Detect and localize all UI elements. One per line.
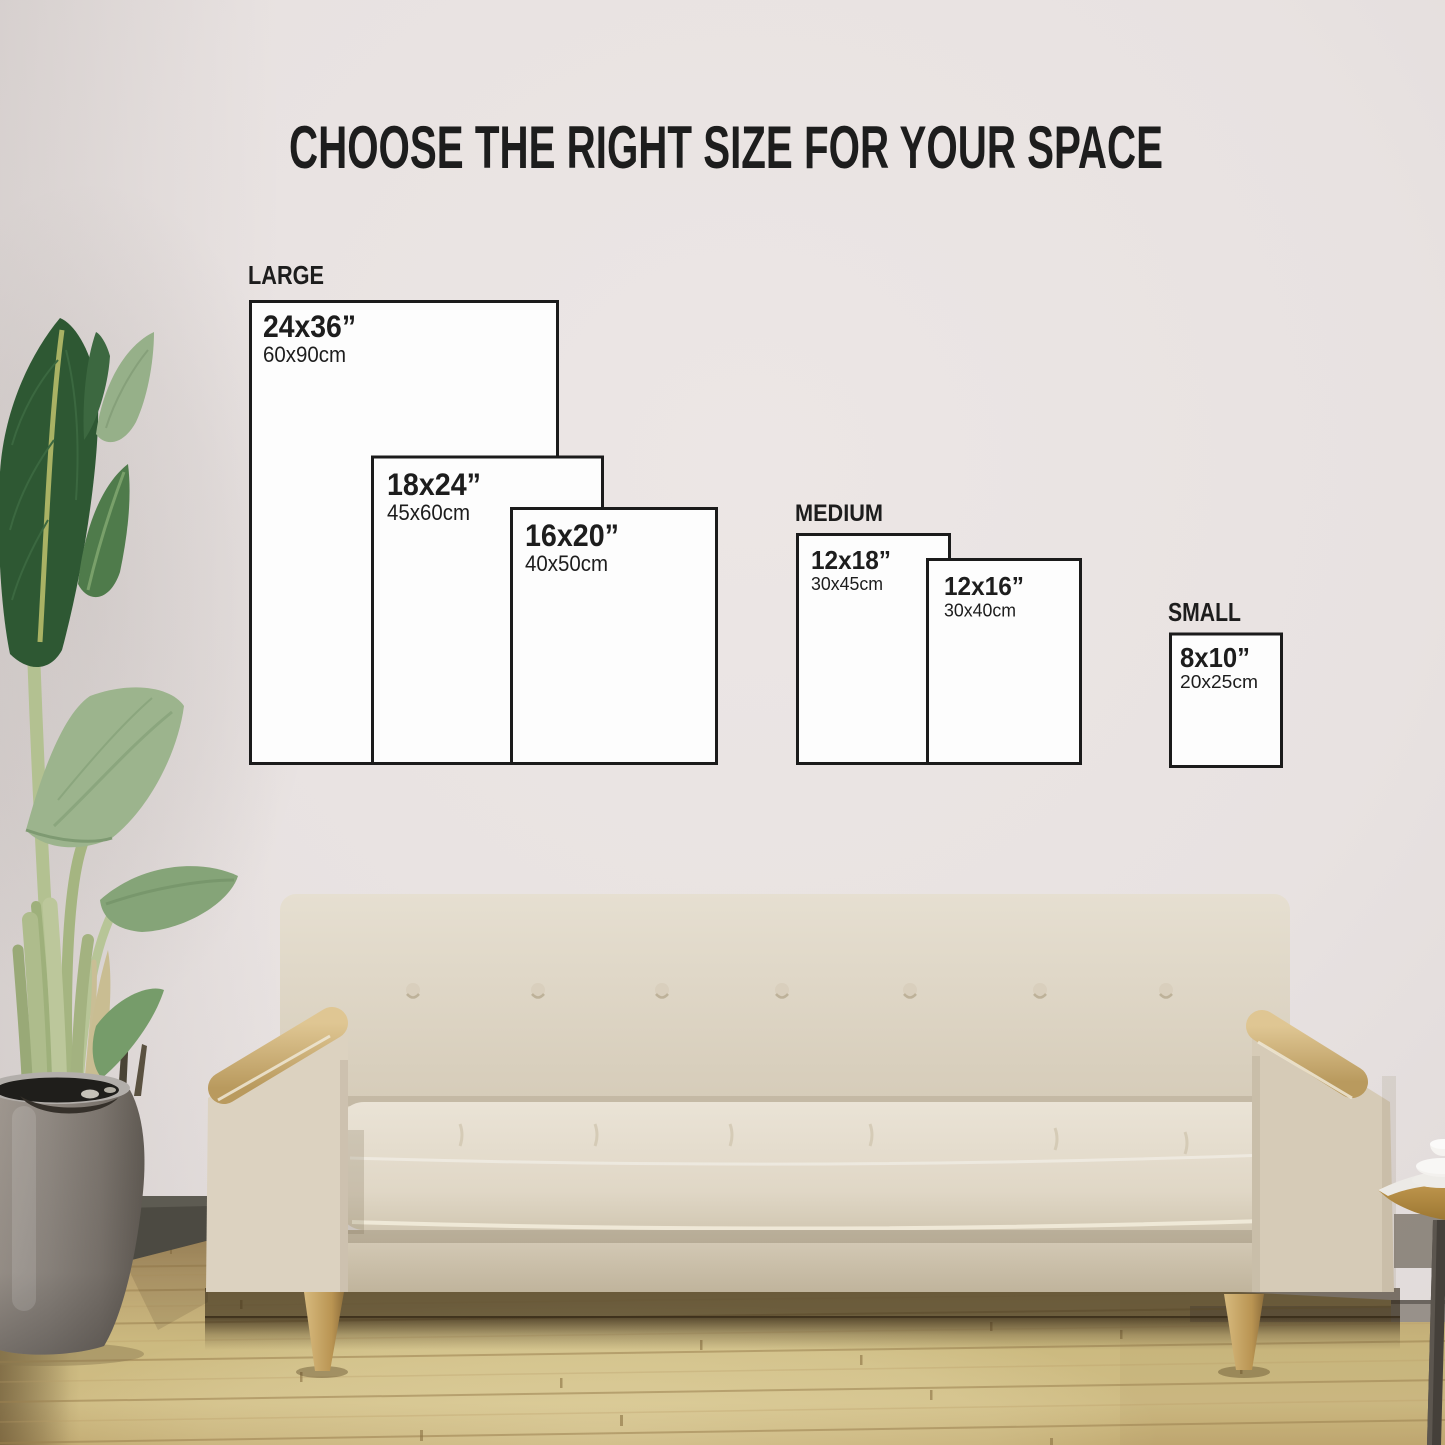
svg-text:20x25cm: 20x25cm	[1180, 672, 1258, 692]
svg-text:MEDIUM: MEDIUM	[795, 500, 883, 527]
svg-text:CHOOSE THE RIGHT SIZE FOR YOUR: CHOOSE THE RIGHT SIZE FOR YOUR SPACE	[289, 114, 1163, 181]
svg-text:16x20”: 16x20”	[525, 517, 619, 553]
svg-text:18x24”: 18x24”	[387, 466, 481, 502]
svg-text:12x16”: 12x16”	[944, 571, 1024, 601]
svg-text:24x36”: 24x36”	[263, 308, 356, 344]
svg-text:45x60cm: 45x60cm	[387, 500, 470, 525]
svg-text:30x45cm: 30x45cm	[811, 574, 883, 594]
svg-text:30x40cm: 30x40cm	[944, 601, 1016, 621]
svg-text:8x10”: 8x10”	[1180, 642, 1250, 673]
svg-text:LARGE: LARGE	[248, 262, 324, 290]
svg-text:SMALL: SMALL	[1168, 599, 1241, 627]
svg-text:60x90cm: 60x90cm	[263, 342, 346, 367]
svg-text:12x18”: 12x18”	[811, 545, 891, 575]
svg-text:40x50cm: 40x50cm	[525, 551, 608, 576]
